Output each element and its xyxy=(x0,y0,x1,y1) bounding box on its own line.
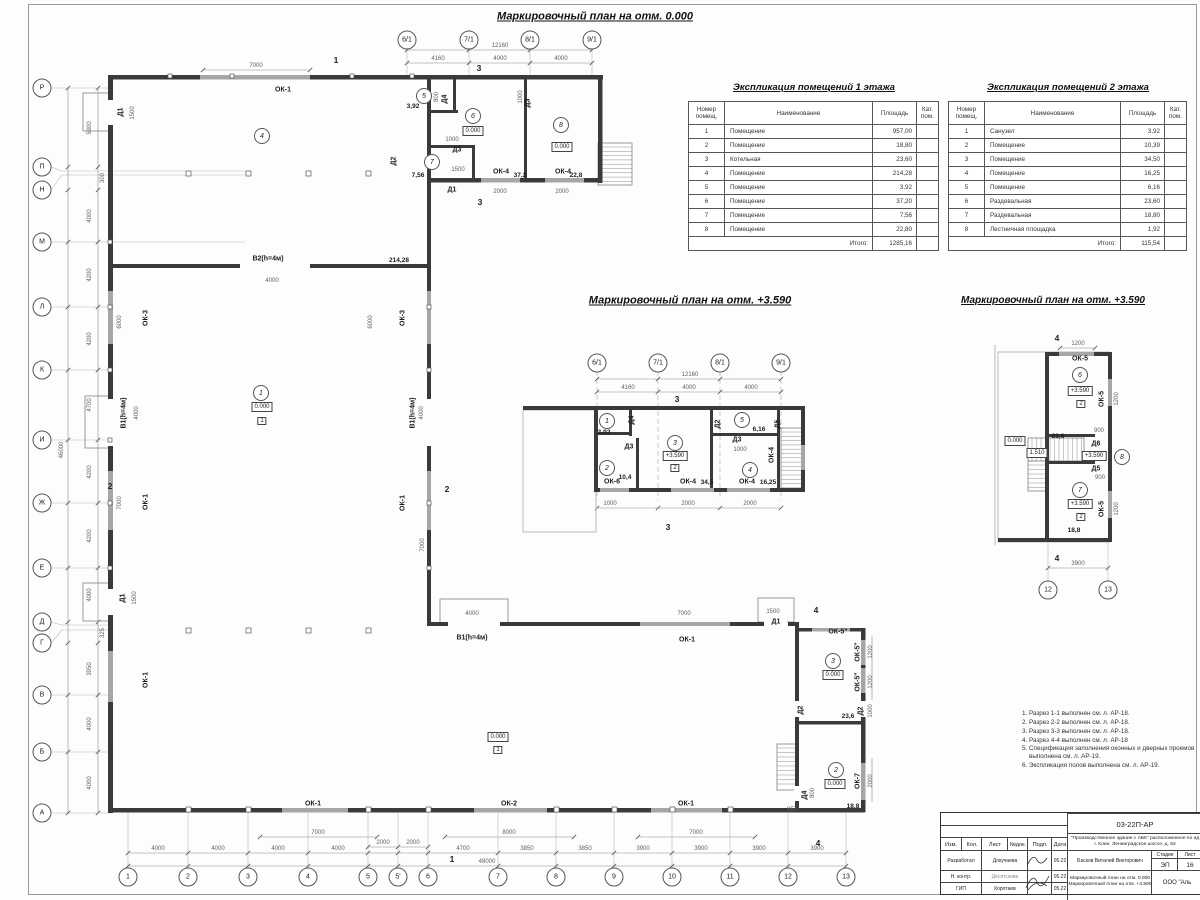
table-row: 8Лестничная площадка1,92 xyxy=(949,223,1187,237)
dimension-text: 4000 xyxy=(134,406,140,419)
element-label: ОК-1 xyxy=(400,495,407,511)
section-mark: 3 xyxy=(666,523,671,532)
axis-bubble: 6 xyxy=(419,868,438,887)
area-value: 37,2 xyxy=(514,173,527,180)
dimension-text: 1000 xyxy=(733,447,746,453)
table-row: 4Помещение16,25 xyxy=(949,167,1187,181)
floor-type-mark: 2 xyxy=(670,464,679,472)
table-cell xyxy=(1165,209,1187,223)
columns xyxy=(108,74,733,812)
tb-role-3: ГИП xyxy=(941,882,981,895)
dimension-text: 325 xyxy=(100,628,106,638)
table-row: 3Помещение34,50 xyxy=(949,153,1187,167)
table-header: Наименование xyxy=(725,102,873,125)
dimension-text: 7000 xyxy=(117,496,123,509)
table-cell xyxy=(1165,237,1187,251)
area-value: 23,6 xyxy=(1052,434,1065,441)
element-label: Д2 xyxy=(798,706,805,715)
axis-bubble: 9/1 xyxy=(583,31,602,50)
axis-bubble: 9/1 xyxy=(772,354,791,373)
room-number: 5 xyxy=(416,88,432,104)
dimension-text: 3950 xyxy=(87,662,93,675)
dimension-text: 1200 xyxy=(868,675,874,688)
section-mark: 1 xyxy=(450,855,455,864)
tb-col-podp: Подп. xyxy=(1027,837,1052,851)
area-value: 34,5 xyxy=(701,480,714,487)
table-cell xyxy=(917,139,939,153)
dimension-text: 1500 xyxy=(130,106,136,119)
dimension-text: 4200 xyxy=(87,529,93,542)
elevation-mark: 0.000 xyxy=(551,142,572,152)
element-label: ОК-5" xyxy=(855,642,862,661)
axis-bubble: Б xyxy=(33,743,52,762)
tb-col-ndok: №док. xyxy=(1007,837,1028,851)
plan-title: Маркировочный план на отм. +3.590 xyxy=(589,296,791,307)
section-mark: 3 xyxy=(675,395,680,404)
element-label: Д3 xyxy=(525,99,532,108)
element-label: Д1 xyxy=(120,594,127,603)
tb-role-1: Разработал xyxy=(941,850,981,871)
dimension-text: 957 xyxy=(787,807,797,813)
element-label: В1(h=4м) xyxy=(456,635,487,642)
element-label: Д4 xyxy=(442,95,449,104)
table-cell: 3,92 xyxy=(873,181,917,195)
table-cell: 3 xyxy=(689,153,725,167)
table-cell: 1 xyxy=(949,125,985,139)
element-label: Д5 xyxy=(775,420,782,429)
table-cell: Помещение xyxy=(985,153,1121,167)
section-mark: 2 xyxy=(108,482,113,491)
section-mark: 4 xyxy=(1055,334,1060,343)
table-total-row: Итого:1285,16 xyxy=(689,237,939,251)
table-cell xyxy=(1165,153,1187,167)
dimension-text: 4160 xyxy=(431,56,444,62)
area-value: 3,92 xyxy=(407,104,420,111)
table-row: 1Санузел3,92 xyxy=(949,125,1187,139)
axis-bubble: 13 xyxy=(1099,581,1118,600)
section-mark: 4 xyxy=(816,839,821,848)
dimension-text: 1200 xyxy=(1114,502,1120,515)
dimension-text: 1000 xyxy=(518,90,524,103)
table-cell: Лестничная площадка xyxy=(985,223,1121,237)
room-number: 6 xyxy=(1072,367,1088,383)
tb-doc-code: 03-22П-АР xyxy=(1067,813,1200,834)
axis-bubble: 8/1 xyxy=(521,31,540,50)
room-number: 8 xyxy=(1114,449,1130,465)
axis-bubble: М xyxy=(33,233,52,252)
table-cell xyxy=(1165,223,1187,237)
note-item: 5. Спецификация заполнения оконных и две… xyxy=(1022,745,1200,761)
dimension-text: 800 xyxy=(810,788,816,798)
element-label: В1(h=4м) xyxy=(410,397,417,428)
plan-title: Маркировочный план на отм. +3.590 xyxy=(961,296,1145,306)
table-total-row: Итого:115,54 xyxy=(949,237,1187,251)
table-cell: 8 xyxy=(949,223,985,237)
element-label: ОК-4 xyxy=(680,479,696,486)
dimension-text: 2000 xyxy=(743,501,756,507)
table-cell: 16,25 xyxy=(1121,167,1165,181)
element-label: ОК-4 xyxy=(555,169,571,176)
dimension-text: 3900 xyxy=(752,846,765,852)
element-label: ОК-1 xyxy=(679,637,695,644)
dimension-text: 5300 xyxy=(87,121,93,134)
area-value: 22,8 xyxy=(570,173,583,180)
section-mark: 2 xyxy=(445,485,450,494)
area-value: 10,4 xyxy=(619,475,632,482)
table-row: 4Помещение214,28 xyxy=(689,167,939,181)
room-number: 3 xyxy=(667,435,683,451)
area-value: 16,25 xyxy=(760,480,776,487)
axis-bubble: 8/1 xyxy=(711,354,730,373)
note-item: 4. Разрез 4-4 выполнен см. л. АР-18 xyxy=(1022,737,1200,745)
element-label: ОК-1 xyxy=(275,87,291,94)
area-value: 3,92 xyxy=(598,430,611,437)
table-cell: 18,80 xyxy=(873,139,917,153)
room-number: 3 xyxy=(825,653,841,669)
table-cell xyxy=(917,195,939,209)
element-label: Д1 xyxy=(772,619,781,626)
element-label: Д6 xyxy=(1092,441,1101,448)
dimension-text: 48000 xyxy=(479,859,496,865)
table-cell: Помещение xyxy=(725,195,873,209)
axis-bubble: 9 xyxy=(605,868,624,887)
area-value: 6,16 xyxy=(753,427,766,434)
table-cell: 34,50 xyxy=(1121,153,1165,167)
dimension-text: 1500 xyxy=(451,167,464,173)
dimension-text: 7000 xyxy=(249,63,262,69)
element-label: ОК-1 xyxy=(143,494,150,510)
table-cell: 6 xyxy=(689,195,725,209)
dimension-text: 1000 xyxy=(868,704,874,717)
element-label: ОК-3 xyxy=(143,310,150,326)
dimension-text: 6000 xyxy=(117,315,123,328)
axis-bubble: 5' xyxy=(389,868,408,887)
table-cell xyxy=(917,125,939,139)
exp-table-floor1: Экспликация помещений 1 этажаНомер помещ… xyxy=(688,82,940,251)
floor-type-mark: 2 xyxy=(1076,400,1085,408)
table-header: Наименование xyxy=(985,102,1121,125)
elevation-mark: 1.510 xyxy=(1026,448,1047,458)
dimension-text: 1200 xyxy=(1114,392,1120,405)
dimension-text: 1500 xyxy=(132,591,138,604)
element-label: В1(h=4м) xyxy=(121,397,128,428)
element-label: Д1 xyxy=(118,108,125,117)
dimension-text: 3900 xyxy=(636,846,649,852)
element-label: Д1 xyxy=(448,187,457,194)
dimension-text: 4000 xyxy=(265,278,278,284)
axis-bubble: Г xyxy=(33,634,52,653)
table-header: Номер помещ. xyxy=(949,102,985,125)
signature-1 xyxy=(1025,851,1053,869)
element-label: ОК-5" xyxy=(855,672,862,691)
elevation-mark: 0.000 xyxy=(487,732,508,742)
dimension-text: 12160 xyxy=(492,43,509,49)
table-header: Площадь xyxy=(1121,102,1165,125)
section-mark: 4 xyxy=(814,606,819,615)
dimension-text: 900 xyxy=(1095,475,1105,481)
table-cell: 23,60 xyxy=(1121,195,1165,209)
table-cell: 115,54 xyxy=(1121,237,1165,251)
dimension-text: 4700 xyxy=(87,398,93,411)
dimension-text: 4000 xyxy=(151,846,164,852)
tb-date-3: 05.22 xyxy=(1051,882,1068,895)
dimension-text: 2000 xyxy=(868,774,874,787)
elevation-mark: +3.590 xyxy=(1068,386,1093,396)
axis-bubble: А xyxy=(33,804,52,823)
elevation-mark: 0.000 xyxy=(1004,436,1025,446)
dimension-text: 2000 xyxy=(555,189,568,195)
dimension-text: 4700 xyxy=(456,846,469,852)
dimension-text: 4160 xyxy=(621,385,634,391)
element-label: ОК-7 xyxy=(855,773,862,789)
element-label: Д3 xyxy=(453,147,462,154)
table-row: 6Помещение37,20 xyxy=(689,195,939,209)
table-cell: Помещение xyxy=(725,209,873,223)
element-label: ОК-4 xyxy=(739,479,755,486)
element-label: Д2 xyxy=(715,420,722,429)
axis-bubble: 6/1 xyxy=(588,354,607,373)
dimension-text: 7000 xyxy=(420,538,426,551)
floor-type-mark: 1 xyxy=(257,417,266,425)
elevation-mark: 0.000 xyxy=(822,670,843,680)
table-cell: 1 xyxy=(689,125,725,139)
dimension-text: 4000 xyxy=(87,588,93,601)
table-cell: Помещение xyxy=(725,181,873,195)
table-cell xyxy=(1165,181,1187,195)
element-label: ОК-1 xyxy=(143,672,150,688)
room-number: 8 xyxy=(553,117,569,133)
table-header: Площадь xyxy=(873,102,917,125)
room-number: 4 xyxy=(742,462,758,478)
table-cell: 214,28 xyxy=(873,167,917,181)
room-number: 6 xyxy=(465,108,481,124)
elevation-mark: +3.590 xyxy=(663,451,688,461)
tb-date-1: 05.22 xyxy=(1051,850,1068,871)
dimension-text: 4200 xyxy=(87,465,93,478)
table-cell: 2 xyxy=(689,139,725,153)
dimension-text: 4200 xyxy=(87,332,93,345)
dimension-text: 1000 xyxy=(445,137,458,143)
dimension-text: 7000 xyxy=(677,611,690,617)
table-cell: 18,80 xyxy=(1121,209,1165,223)
drawing-sheet: { "sheet": { "plan1_title": "Маркировочн… xyxy=(0,0,1200,900)
axis-bubble: И xyxy=(33,431,52,450)
section-mark: 3 xyxy=(478,198,483,207)
axis-bubble: 12 xyxy=(1039,581,1058,600)
element-label: ОК-3 xyxy=(400,310,407,326)
elevation-mark: 0.000 xyxy=(251,402,272,412)
axis-bubble: 12 xyxy=(779,868,798,887)
axis-bubble: В xyxy=(33,686,52,705)
title-block: Изм. Кол. Лист №док. Подп. Дата Разработ… xyxy=(940,812,1200,895)
tb-chief: Басков Виталий Викторович xyxy=(1067,850,1152,871)
axis-bubble: 3 xyxy=(239,868,258,887)
axis-bubble: 11 xyxy=(721,868,740,887)
room-number: 2 xyxy=(599,460,615,476)
room-number: 7 xyxy=(424,154,440,170)
axis-bubble: Е xyxy=(33,559,52,578)
tb-name-3: Коротаев xyxy=(981,882,1028,895)
table-row: 3Котельная23,60 xyxy=(689,153,939,167)
element-label: ОК-4 xyxy=(493,169,509,176)
table-cell: Итого: xyxy=(689,237,873,251)
section-mark: 1 xyxy=(334,56,339,65)
table-cell: Помещение xyxy=(985,139,1121,153)
dimension-text: 4000 xyxy=(465,611,478,617)
dimension-text: 4000 xyxy=(744,385,757,391)
notes-list: 1. Разрез 1-1 выполнен см. л. АР-18.2. Р… xyxy=(1022,710,1200,771)
table-cell: 1,92 xyxy=(1121,223,1165,237)
note-item: 3. Разрез 3-3 выполнен см. л. АР-18. xyxy=(1022,728,1200,736)
axis-bubble: 1 xyxy=(119,868,138,887)
dimension-text: 4000 xyxy=(87,209,93,222)
dimension-text: 1000 xyxy=(603,501,616,507)
element-label: ОК-2 xyxy=(501,801,517,808)
area-value: 18,8 xyxy=(1068,528,1081,535)
dimension-text: 3850 xyxy=(520,846,533,852)
dimension-text: 3900 xyxy=(1071,561,1084,567)
table-title: Экспликация помещений 2 этажа xyxy=(948,82,1188,93)
tb-project-line2: г. Клин, Ленинградское шоссе, д. 53 xyxy=(1068,842,1200,848)
element-label: Д4 xyxy=(802,791,809,800)
dimension-text: 46000 xyxy=(59,442,65,459)
exposition-table: Номер помещ.НаименованиеПлощадьКат. пом.… xyxy=(688,101,939,251)
table-cell xyxy=(917,167,939,181)
table-cell: 5 xyxy=(689,181,725,195)
room-number: 2 xyxy=(828,762,844,778)
dimension-text: 4000 xyxy=(87,776,93,789)
element-label: Д2 xyxy=(391,157,398,166)
axis-bubble: 7/1 xyxy=(460,31,479,50)
axis-bubble: Р xyxy=(33,79,52,98)
dimension-text: 7000 xyxy=(689,830,702,836)
dimension-text: 3850 xyxy=(578,846,591,852)
table-cell: 6 xyxy=(949,195,985,209)
area-value: 214,28 xyxy=(389,258,409,265)
table-cell: Итого: xyxy=(949,237,1121,251)
element-label: ОК-5" xyxy=(828,629,847,636)
axis-bubble: П xyxy=(33,158,52,177)
axis-bubble: 7 xyxy=(489,868,508,887)
table-header: Кат. пом. xyxy=(1165,102,1187,125)
table-cell: 4 xyxy=(689,167,725,181)
table-cell xyxy=(917,153,939,167)
axis-bubble: 6/1 xyxy=(398,31,417,50)
table-row: 2Помещение10,39 xyxy=(949,139,1187,153)
table-cell xyxy=(1165,125,1187,139)
table-cell: 7 xyxy=(689,209,725,223)
table-row: 5Помещение6,16 xyxy=(949,181,1187,195)
table-cell xyxy=(1165,195,1187,209)
table-cell: Санузел xyxy=(985,125,1121,139)
table-cell xyxy=(1165,139,1187,153)
axis-bubble: 10 xyxy=(663,868,682,887)
dimension-text: 300 xyxy=(100,173,106,183)
dimension-text: 1200 xyxy=(1071,341,1084,347)
dimension-text: 12160 xyxy=(682,372,699,378)
tb-company: ООО "Аль xyxy=(1151,870,1200,895)
room-number: 1 xyxy=(599,413,615,429)
note-item: 1. Разрез 1-1 выполнен см. л. АР-18. xyxy=(1022,710,1200,718)
tb-name-1: Докучаева xyxy=(981,850,1028,871)
element-label: ОК-5 xyxy=(1072,356,1088,363)
table-cell: 22,80 xyxy=(873,223,917,237)
table-cell: 1285,16 xyxy=(873,237,917,251)
element-label: Д2 xyxy=(858,707,865,716)
element-label: Д4 xyxy=(629,416,636,425)
table-cell: 8 xyxy=(689,223,725,237)
element-label: В2(h=4м) xyxy=(252,256,283,263)
elevation-mark: 0.000 xyxy=(462,126,483,136)
table-cell: 5 xyxy=(949,181,985,195)
table-cell: 3,92 xyxy=(1121,125,1165,139)
element-label: ОК-5 xyxy=(1099,391,1106,407)
dimension-text: 7000 xyxy=(311,830,324,836)
elevation-mark: +3.590 xyxy=(1068,499,1093,509)
table-row: 8Помещение22,80 xyxy=(689,223,939,237)
axis-bubble: 8 xyxy=(547,868,566,887)
axis-bubble: К xyxy=(33,361,52,380)
table-row: 2Помещение18,80 xyxy=(689,139,939,153)
room-number: 5 xyxy=(734,412,750,428)
table-row: 7Раздевальная18,80 xyxy=(949,209,1187,223)
axis-bubble: Д xyxy=(33,613,52,632)
dimension-text: 8000 xyxy=(502,830,515,836)
dimension-text: 4200 xyxy=(87,268,93,281)
table-cell: 23,60 xyxy=(873,153,917,167)
dimension-text: 6000 xyxy=(368,315,374,328)
table-cell: Раздевальная xyxy=(985,209,1121,223)
table-header: Номер помещ. xyxy=(689,102,725,125)
dimension-text: 3900 xyxy=(694,846,707,852)
dimension-text: 2000 xyxy=(406,840,419,846)
tb-col-kol: Кол. xyxy=(961,837,982,851)
table-cell: Помещение xyxy=(985,181,1121,195)
table-row: 7Помещение7,56 xyxy=(689,209,939,223)
area-value: 7,56 xyxy=(412,173,425,180)
table-cell: Помещение xyxy=(725,139,873,153)
element-label: Д3 xyxy=(625,444,634,451)
room-number: 1 xyxy=(253,385,269,401)
table-cell: Помещение xyxy=(725,125,873,139)
axis-bubble: Ж xyxy=(33,494,52,513)
table-title: Экспликация помещений 1 этажа xyxy=(688,82,940,93)
elevation-mark: +3.590 xyxy=(1082,451,1107,461)
axis-bubble: 5 xyxy=(359,868,378,887)
section-mark: 4 xyxy=(1055,554,1060,563)
element-label: ОК-5 xyxy=(1099,501,1106,517)
dimension-text: 2000 xyxy=(681,501,694,507)
dimension-text: 4000 xyxy=(331,846,344,852)
table-cell: 2 xyxy=(949,139,985,153)
room-number: 7 xyxy=(1072,482,1088,498)
dimension-text: 2000 xyxy=(493,189,506,195)
table-cell: 7 xyxy=(949,209,985,223)
element-label: ОК-1 xyxy=(678,801,694,808)
dimension-text: 900 xyxy=(1094,428,1104,434)
element-label: ОК-1 xyxy=(305,801,321,808)
table-header: Кат. пом. xyxy=(917,102,939,125)
table-cell: Помещение xyxy=(725,223,873,237)
axis-bubble: 7/1 xyxy=(649,354,668,373)
element-label: Д3 xyxy=(733,437,742,444)
table-cell: Помещение xyxy=(725,167,873,181)
signature-2 xyxy=(1023,870,1053,894)
dimension-text: 4000 xyxy=(493,56,506,62)
note-item: 6. Экспликация полов выполнена см. л. АР… xyxy=(1022,762,1200,770)
dimension-text: 4000 xyxy=(682,385,695,391)
table-cell xyxy=(917,223,939,237)
